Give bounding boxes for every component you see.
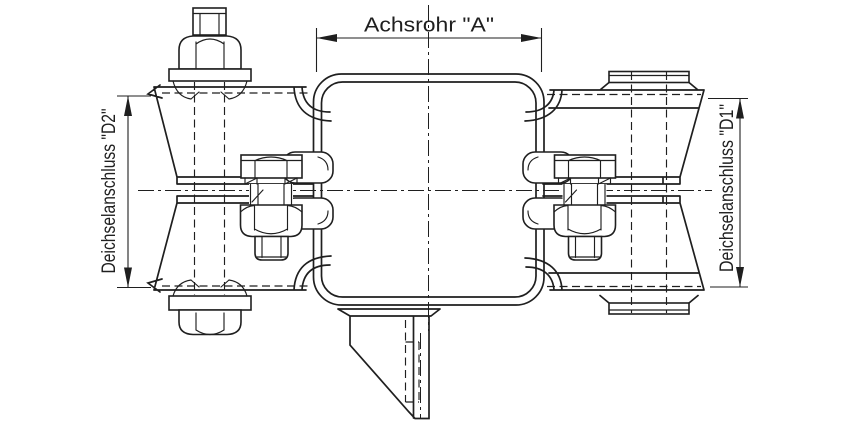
bottom-bracket	[338, 309, 440, 419]
vertical-bolt-top-washer	[169, 69, 251, 81]
right-clamp-outline	[525, 83, 704, 304]
technical-drawing-canvas: Achsrohr "A" Deichselanschluss "D2" Deic…	[0, 0, 852, 430]
achsrohr-a-label: Achsrohr "A"	[364, 15, 494, 37]
right-clamp-top-boss-pad	[609, 72, 689, 83]
vertical-bolt-thread-tip	[193, 8, 226, 35]
right-clamp-bolt	[554, 155, 616, 260]
left-bolt-shank-backer	[249, 184, 293, 205]
vertical-bolt-bottom-nut	[179, 310, 241, 335]
d2-arrowhead-bottom	[124, 268, 132, 288]
right-bolt-shank-backer	[563, 184, 607, 205]
right-clamp-boss-detail	[609, 76, 689, 311]
vertical-bolt-top-nut	[179, 36, 241, 69]
dimension-deichselanschluss-d1: Deichselanschluss "D1"	[708, 99, 748, 288]
left-bolt-nut	[241, 205, 303, 237]
vertical-centerline	[421, 5, 429, 419]
bottom-bracket-hidden-slot	[406, 320, 420, 402]
vertical-bolt-bottom-washer	[169, 296, 251, 310]
drawing-svg: Achsrohr "A" Deichselanschluss "D2" Deic…	[0, 0, 852, 430]
deichselanschluss-d2-label: Deichselanschluss "D2"	[98, 108, 120, 273]
left-bolt-head	[241, 155, 302, 178]
deichselanschluss-d1-label: Deichselanschluss "D1"	[716, 104, 738, 272]
right-clamp-bottom-boss-pad	[609, 303, 689, 314]
right-bolt-nut	[554, 205, 616, 237]
achsrohr-arrowhead-right	[521, 34, 542, 42]
left-clamp-outline	[148, 85, 331, 292]
d2-arrowhead-top	[124, 96, 132, 116]
left-clamp-bolt	[241, 155, 303, 260]
achsrohr-arrowhead-left	[317, 34, 338, 42]
right-bolt-head	[555, 155, 616, 178]
bottom-bracket-outline	[338, 309, 440, 419]
right-clamp	[525, 72, 704, 315]
dimension-deichselanschluss-d2: Deichselanschluss "D2"	[98, 96, 151, 288]
vertical-bolt-hidden-shank	[195, 82, 225, 295]
d2-dimension-lines	[117, 96, 151, 288]
left-clamp	[148, 85, 331, 292]
